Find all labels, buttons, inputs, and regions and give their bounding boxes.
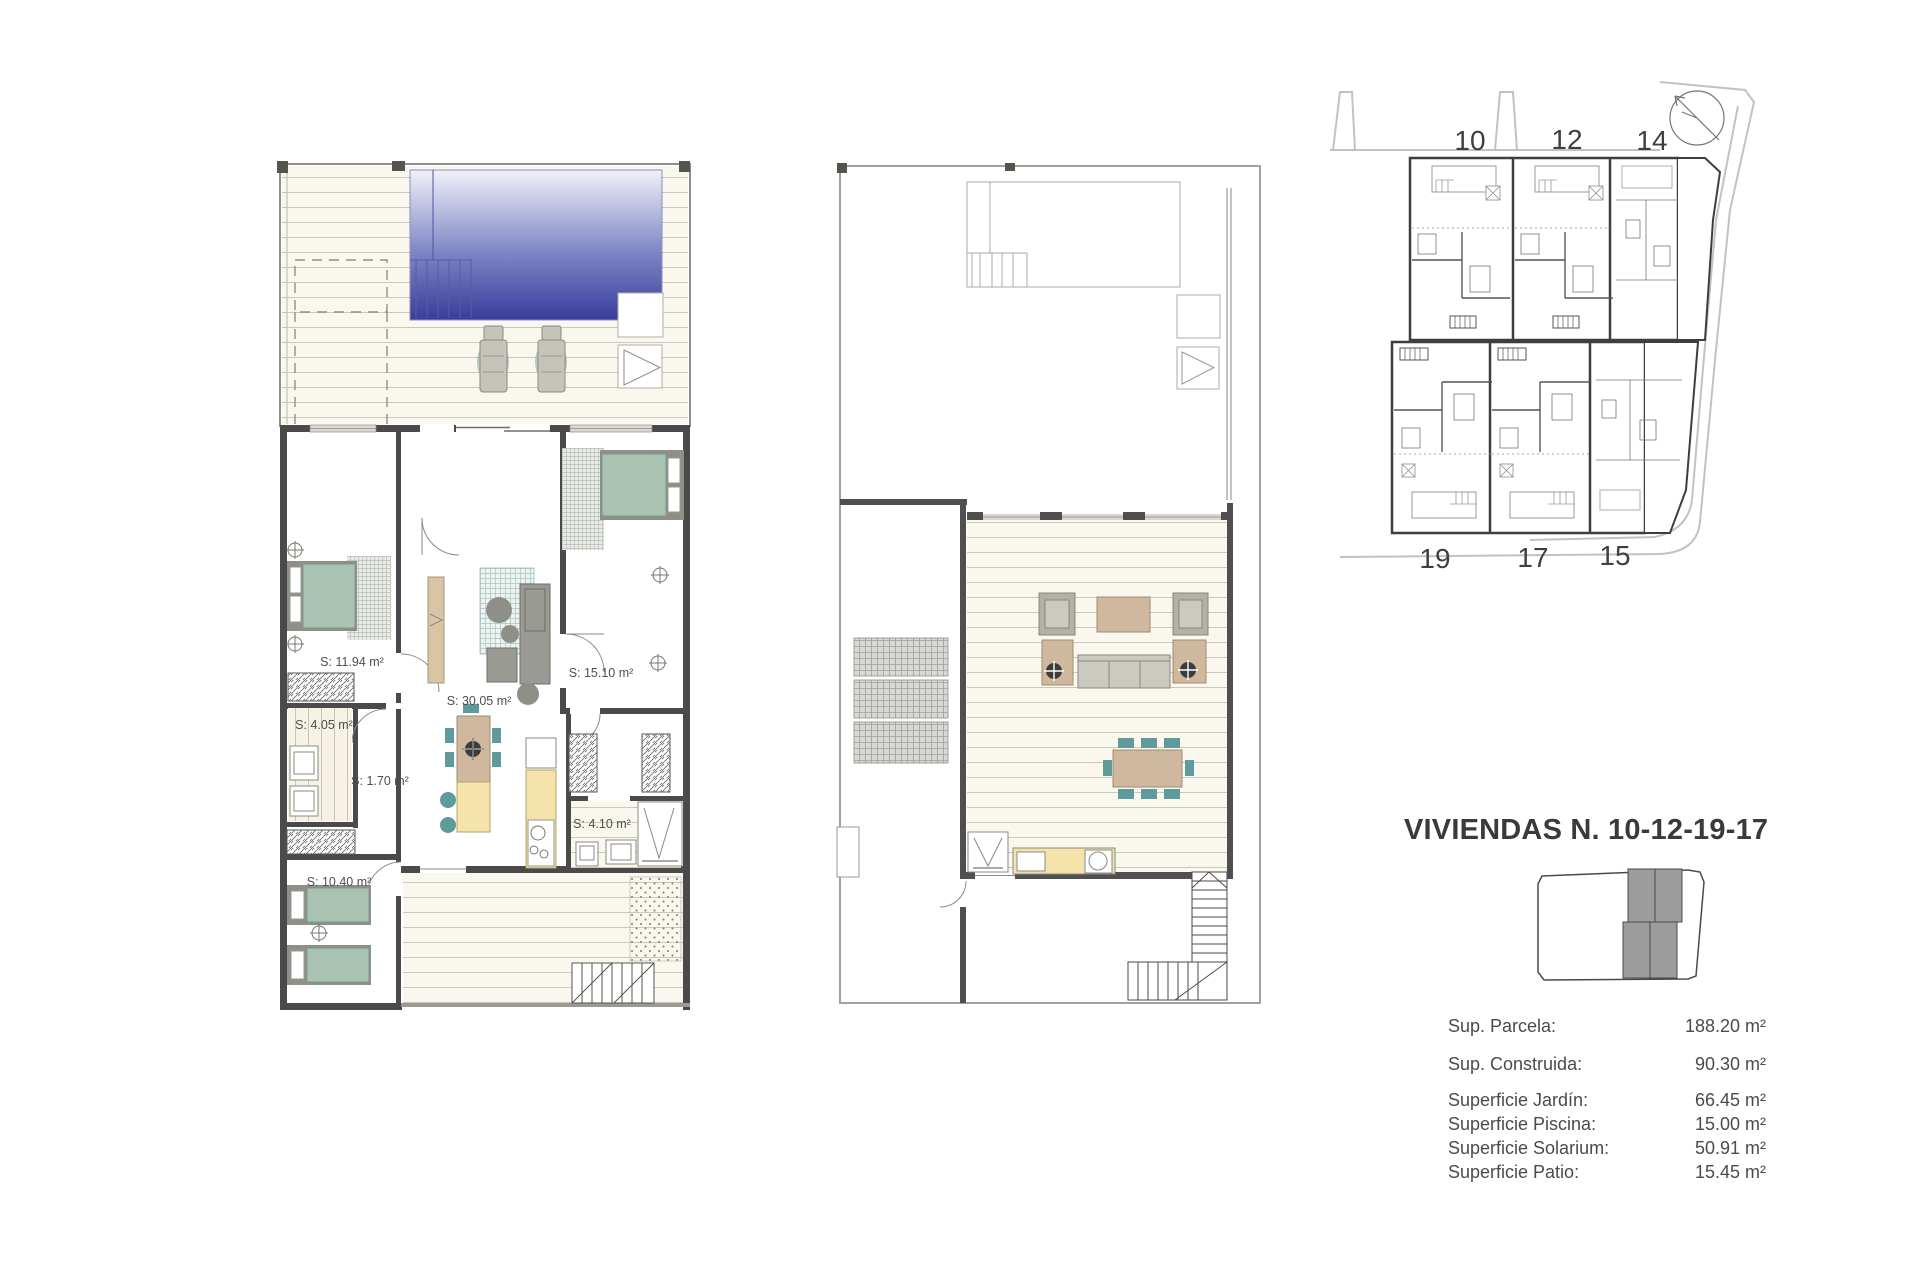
pool-equipment-box: [618, 293, 663, 337]
dining-island: [440, 704, 501, 833]
kitchen: [526, 738, 556, 868]
solarium-glass-wall: [967, 512, 1233, 521]
outdoor-kitchen-counter: [1013, 848, 1115, 874]
storage-box: [1177, 295, 1220, 338]
outdoor-shower: [618, 345, 662, 388]
row-value: 90.30 m²: [1695, 1052, 1766, 1076]
row-label: Superficie Jardín:: [1448, 1088, 1588, 1112]
first-floor-plan: [835, 148, 1275, 1028]
row-value: 66.45 m²: [1695, 1088, 1766, 1112]
patio-stairs: [572, 963, 654, 1003]
label-bedroom-twin: S: 10.40 m²: [307, 875, 372, 889]
table-row: Superficie Jardín: 66.45 m²: [1448, 1088, 1766, 1112]
table-row: Superficie Patio: 15.45 m²: [1448, 1160, 1766, 1184]
table-row: Sup. Parcela: 188.20 m²: [1448, 1014, 1766, 1038]
highlighted-units: [1623, 869, 1682, 978]
planter-box: [837, 827, 859, 877]
row-value: 50.91 m²: [1695, 1136, 1766, 1160]
table-row: Superficie Solarium: 50.91 m²: [1448, 1136, 1766, 1160]
pergola-grid-panels: [854, 638, 948, 763]
wardrobe: [288, 673, 354, 701]
site-units-top: [1410, 158, 1720, 340]
rear-patio: [403, 873, 683, 1003]
page-title: VIVIENDAS N. 10-12-19-17: [1404, 814, 1920, 847]
unit-number-19: 19: [1419, 543, 1450, 574]
wardrobe: [287, 830, 355, 854]
label-living: S: 30.05 m²: [447, 694, 512, 708]
label-laundry: S: 4.05 m²: [295, 718, 353, 732]
row-label: Superficie Solarium:: [1448, 1136, 1609, 1160]
row-label: Sup. Construida:: [1448, 1052, 1582, 1076]
bedroom-double: [562, 448, 684, 672]
corridor-wardrobes: [569, 734, 670, 792]
unit-number-17: 17: [1517, 542, 1548, 573]
label-bedroom-double: S: 15.10 m²: [569, 666, 634, 680]
solarium-deck: [967, 520, 1227, 872]
ground-floor-plan: S: 11.94 m² S: 4.05 m² S: 1.70 m² S: 30.…: [270, 148, 700, 1028]
row-label: Sup. Parcela:: [1448, 1014, 1556, 1038]
outdoor-shower: [1177, 347, 1219, 389]
solarium-shower: [968, 832, 1008, 872]
right-inner-wall: [1227, 188, 1231, 500]
area-summary-table: Sup. Parcela: 188.20 m² Sup. Construida:…: [1448, 1014, 1766, 1184]
table-row: Sup. Construida: 90.30 m²: [1448, 1052, 1766, 1076]
living-room: [428, 568, 550, 705]
site-plan: 10 12 14 19 17 15: [1330, 60, 1800, 630]
bathroom: [571, 801, 682, 868]
north-compass-icon: [1670, 91, 1724, 145]
label-bedroom-main: S: 11.94 m²: [320, 655, 384, 669]
unit-number-14: 14: [1636, 125, 1667, 156]
row-value: 15.45 m²: [1695, 1160, 1766, 1184]
row-value: 188.20 m²: [1685, 1014, 1766, 1038]
label-hall: S: 1.70 m²: [351, 774, 409, 788]
unit-number-15: 15: [1599, 540, 1630, 571]
key-plan: [1528, 858, 1763, 1008]
table-row: Superficie Piscina: 15.00 m²: [1448, 1112, 1766, 1136]
row-label: Superficie Piscina:: [1448, 1112, 1596, 1136]
unit-number-10: 10: [1454, 125, 1485, 156]
bedroom-twin: [287, 885, 371, 985]
site-units-bottom: [1392, 342, 1698, 533]
pool-void-outline: [967, 182, 1180, 287]
bedroom-main: [286, 541, 391, 701]
stairs: [1128, 872, 1227, 1000]
unit-number-12: 12: [1551, 124, 1582, 155]
row-value: 15.00 m²: [1695, 1112, 1766, 1136]
label-bathroom: S: 4.10 m²: [573, 817, 631, 831]
row-label: Superficie Patio:: [1448, 1160, 1579, 1184]
